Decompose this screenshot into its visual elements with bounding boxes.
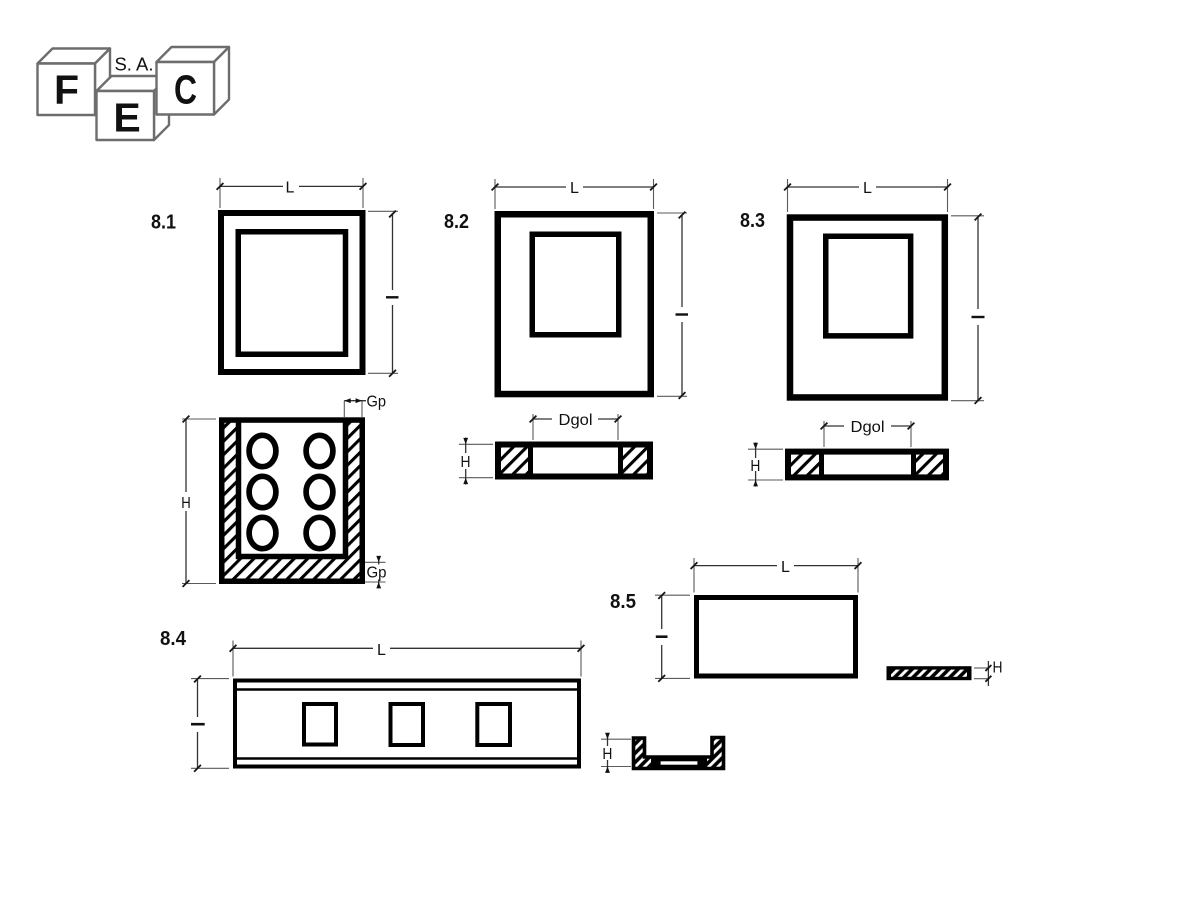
svg-text:Gp: Gp [367,394,387,411]
svg-text:L: L [570,180,579,197]
svg-text:L: L [863,180,872,197]
svg-text:Dgol: Dgol [851,419,885,436]
svg-text:8.2: 8.2 [444,211,469,233]
svg-text:8.3: 8.3 [740,210,765,232]
svg-text:S. A.: S. A. [114,54,153,75]
svg-text:8.1: 8.1 [151,212,176,234]
svg-text:H: H [993,660,1003,677]
svg-text:Dgol: Dgol [559,412,593,429]
svg-text:H: H [181,495,191,512]
svg-text:8.4: 8.4 [160,628,187,650]
svg-text:H: H [750,458,760,475]
svg-text:E: E [113,95,140,141]
svg-text:C: C [174,67,197,113]
svg-text:H: H [461,454,471,471]
svg-text:L: L [377,642,386,659]
svg-text:L: L [286,180,295,197]
svg-text:H: H [602,746,612,763]
svg-text:8.5: 8.5 [610,591,636,613]
svg-text:Gp: Gp [367,565,387,582]
svg-text:F: F [54,67,79,113]
svg-text:L: L [781,559,790,576]
